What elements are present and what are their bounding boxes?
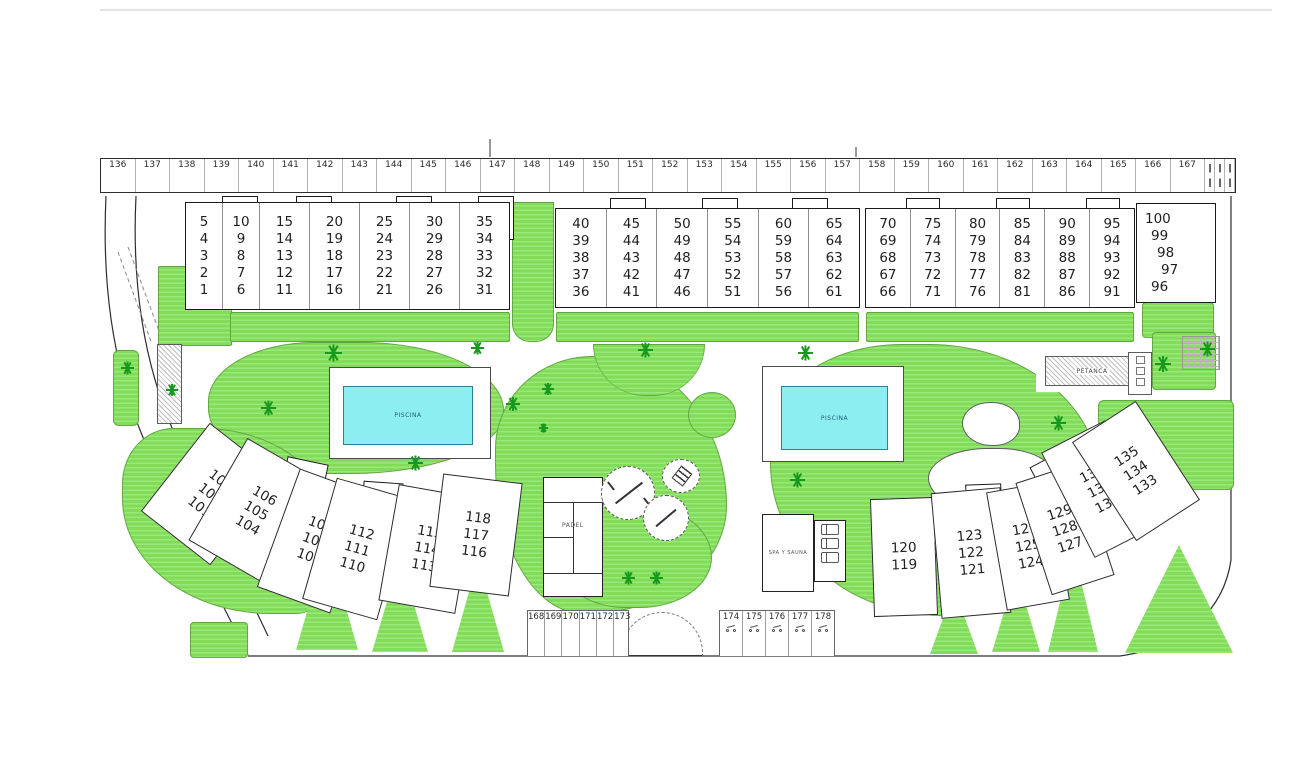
parking-space: 140 (239, 159, 274, 192)
parking-space: 169 (545, 611, 562, 656)
unit-number[interactable]: 10 (232, 214, 249, 231)
building-units-36-65: 4039383736454443424150494847465554535251… (555, 208, 860, 308)
unit-number[interactable]: 43 (623, 250, 640, 267)
parking-space: 136 (101, 159, 136, 192)
parking-space: 171 (580, 611, 597, 656)
unit-number[interactable]: 23 (376, 248, 393, 265)
unit-number[interactable]: 70 (879, 216, 896, 233)
unit-number[interactable]: 45 (623, 216, 640, 233)
lawn-area (688, 392, 736, 438)
lounger-icon (821, 538, 839, 549)
unit-number[interactable]: 95 (1103, 216, 1120, 233)
unit-column[interactable]: 7069686766 (866, 209, 910, 307)
parking-space-moto: 174 (720, 611, 743, 656)
parking-row-bottom-left: 168169170171172173 (527, 610, 629, 656)
unit-column[interactable]: 9089888786 (1044, 209, 1089, 307)
parking-space: 151 (619, 159, 654, 192)
motorcycle-icon (818, 626, 828, 632)
unit-number[interactable]: 47 (674, 267, 691, 284)
parking-space-moto: 178 (812, 611, 834, 656)
unit-column[interactable]: 1514131211 (259, 203, 309, 309)
petanca-court[interactable]: PETANCA (1045, 356, 1139, 386)
unit-number[interactable]: 42 (623, 267, 640, 284)
parking-space-moto: 177 (789, 611, 812, 656)
lower-unit-block[interactable]: 120119 (870, 497, 938, 617)
unit-number[interactable]: 38 (572, 250, 589, 267)
unit-number[interactable]: 80 (969, 216, 986, 233)
unit-column[interactable]: 6564636261 (808, 209, 859, 307)
tree-icon (471, 347, 484, 349)
lounger-icon (821, 524, 839, 535)
parking-number: 174 (723, 612, 739, 622)
lawn-area (556, 312, 859, 342)
unit-number[interactable]: 64 (826, 233, 843, 250)
building-units-66-95: 7069686766757473727180797877768584838281… (865, 208, 1135, 308)
unit-number[interactable]: 4 (200, 231, 209, 248)
unit-number[interactable]: 59 (775, 233, 792, 250)
slide-ladder-icon (672, 465, 693, 486)
lawn-area (230, 312, 510, 342)
parking-space: 173 (614, 611, 630, 656)
unit-number[interactable]: 44 (623, 233, 640, 250)
building-units-96-100[interactable]: 10099989796 (1136, 203, 1216, 303)
unit-number[interactable]: 35 (476, 214, 493, 231)
unit-number[interactable]: 24 (376, 231, 393, 248)
parking-space: 144 (377, 159, 412, 192)
unit-number[interactable]: 83 (1014, 250, 1031, 267)
parking-space: 161 (964, 159, 999, 192)
playground-circle-2 (643, 495, 689, 541)
unit-number[interactable]: 66 (879, 284, 896, 301)
unit-column[interactable]: 9594939291 (1089, 209, 1134, 307)
parking-number: 178 (815, 612, 831, 622)
unit-number[interactable]: 58 (775, 250, 792, 267)
unit-column[interactable]: 7574737271 (910, 209, 955, 307)
unit-number[interactable]: 32 (476, 265, 493, 282)
parking-number: 177 (792, 612, 808, 622)
parking-space: 163 (1033, 159, 1068, 192)
unit-number[interactable]: 30 (426, 214, 443, 231)
unit-number[interactable]: 13 (276, 248, 293, 265)
motorcycle-icon (749, 626, 759, 632)
unit-number[interactable]: 63 (826, 250, 843, 267)
unit-number[interactable]: 18 (326, 248, 343, 265)
unit-number[interactable]: 1 (200, 282, 209, 299)
pool-right[interactable]: PISCINA (781, 386, 888, 450)
unit-number[interactable]: 87 (1059, 267, 1076, 284)
unit-number[interactable]: 88 (1059, 250, 1076, 267)
unit-number[interactable]: 53 (724, 250, 741, 267)
unit-number[interactable]: 5 (200, 214, 209, 231)
parking-space: 160 (929, 159, 964, 192)
unit-column[interactable]: 2019181716 (309, 203, 359, 309)
unit-number[interactable]: 69 (879, 233, 896, 250)
unit-number[interactable]: 89 (1059, 233, 1076, 250)
unit-number[interactable]: 29 (426, 231, 443, 248)
pool-left-label: PISCINA (394, 412, 421, 419)
unit-number[interactable]: 100 (1139, 211, 1171, 228)
unit-number[interactable]: 78 (969, 250, 986, 267)
unit-column[interactable]: 6059585756 (758, 209, 809, 307)
unit-number[interactable]: 90 (1059, 216, 1076, 233)
building-units-1-35: 5432110987615141312112019181716252423222… (185, 202, 510, 310)
bike-rack-icon (1205, 159, 1215, 192)
parking-space: 149 (550, 159, 585, 192)
lawn-area (866, 312, 1134, 342)
parking-space: 158 (860, 159, 895, 192)
bike-rack-icon (1215, 159, 1225, 192)
site-plan-canvas: PETANCA PISCINA PISCINA PADEL SPA Y SAUN… (0, 0, 1315, 778)
lower-unit-block[interactable]: 118117116 (429, 474, 522, 597)
unit-column[interactable]: 5554535251 (707, 209, 758, 307)
unit-number[interactable]: 31 (476, 282, 493, 299)
parking-space: 143 (343, 159, 378, 192)
motorcycle-icon (795, 626, 805, 632)
unit-column[interactable]: 8079787776 (955, 209, 1000, 307)
parking-number: 176 (769, 612, 785, 622)
unit-number[interactable]: 79 (969, 233, 986, 250)
unit-number[interactable]: 41 (623, 284, 640, 301)
parking-space: 141 (274, 159, 309, 192)
unit-number[interactable]: 15 (276, 214, 293, 231)
unit-number[interactable]: 33 (476, 248, 493, 265)
tree-icon (798, 352, 813, 354)
lawn-wedge (1125, 545, 1233, 653)
unit-number[interactable]: 55 (724, 216, 741, 233)
parking-row-top: 1361371381391401411421431441451461471481… (100, 158, 1236, 193)
parking-space: 152 (653, 159, 688, 192)
unit-column[interactable]: 5049484746 (656, 209, 707, 307)
unit-number[interactable]: 121 (959, 560, 986, 579)
parking-row-bottom-right: 174175176177178 (719, 610, 835, 656)
unit-number[interactable]: 76 (969, 284, 986, 301)
parking-space: 164 (1067, 159, 1102, 192)
unit-number[interactable]: 40 (572, 216, 589, 233)
unit-column[interactable]: 54321 (186, 203, 222, 309)
unit-number[interactable]: 73 (924, 250, 941, 267)
unit-number[interactable]: 94 (1103, 233, 1120, 250)
unit-number[interactable]: 96 (1145, 279, 1168, 296)
unit-number[interactable]: 6 (237, 282, 246, 299)
unit-column[interactable]: 8584838281 (999, 209, 1044, 307)
parking-space: 147 (481, 159, 516, 192)
unit-column[interactable]: 3534333231 (459, 203, 509, 309)
lawn-area (190, 622, 248, 658)
unit-number[interactable]: 25 (376, 214, 393, 231)
unit-number[interactable]: 17 (326, 265, 343, 282)
unit-number[interactable]: 93 (1103, 250, 1120, 267)
unit-number[interactable]: 119 (891, 557, 917, 575)
unit-number[interactable]: 68 (879, 250, 896, 267)
parking-space: 139 (205, 159, 240, 192)
unit-number[interactable]: 92 (1103, 267, 1120, 284)
unit-column[interactable]: 2524232221 (359, 203, 409, 309)
unit-number[interactable]: 67 (879, 267, 896, 284)
unit-number[interactable]: 81 (1014, 284, 1031, 301)
unit-number[interactable]: 19 (326, 231, 343, 248)
parking-space: 162 (998, 159, 1033, 192)
unit-number[interactable]: 75 (924, 216, 941, 233)
spa-building[interactable]: SPA Y SAUNA (762, 514, 814, 592)
unit-number[interactable]: 3 (200, 248, 209, 265)
unit-number[interactable]: 26 (426, 282, 443, 299)
petanca-label: PETANCA (1075, 368, 1110, 375)
unit-column[interactable]: 3029282726 (409, 203, 459, 309)
unit-number[interactable]: 39 (572, 233, 589, 250)
parking-space: 168 (528, 611, 545, 656)
unit-number[interactable]: 99 (1145, 228, 1168, 245)
pool-left[interactable]: PISCINA (343, 386, 473, 445)
unit-number[interactable]: 50 (674, 216, 691, 233)
parking-number: 175 (746, 612, 762, 622)
unit-number[interactable]: 48 (674, 250, 691, 267)
unit-number[interactable]: 120 (891, 540, 917, 558)
lawn-area (512, 202, 554, 342)
unit-number[interactable]: 91 (1103, 284, 1120, 301)
unit-number[interactable]: 97 (1155, 262, 1178, 279)
lawn-area (113, 350, 139, 426)
unit-number[interactable]: 71 (924, 284, 941, 301)
spa-annex (814, 520, 846, 582)
unit-column[interactable]: 4039383736 (556, 209, 606, 307)
bins-area (1128, 352, 1152, 395)
unit-column[interactable]: 4544434241 (606, 209, 657, 307)
parking-space: 146 (446, 159, 481, 192)
unit-number[interactable]: 54 (724, 233, 741, 250)
unit-number[interactable]: 8 (237, 248, 246, 265)
unit-number[interactable]: 65 (826, 216, 843, 233)
unit-number[interactable]: 20 (326, 214, 343, 231)
padel-label: PADEL (562, 522, 584, 529)
unit-number[interactable]: 14 (276, 231, 293, 248)
parking-space: 157 (826, 159, 861, 192)
pool-right-label: PISCINA (821, 415, 848, 422)
unit-number[interactable]: 86 (1059, 284, 1076, 301)
unit-number[interactable]: 85 (1014, 216, 1031, 233)
unit-column[interactable]: 109876 (222, 203, 259, 309)
parking-space: 156 (791, 159, 826, 192)
unit-number[interactable]: 16 (326, 282, 343, 299)
motorcycle-icon (772, 626, 782, 632)
bike-rack-icon (1225, 159, 1235, 192)
parking-space: 154 (722, 159, 757, 192)
unit-number[interactable]: 56 (775, 284, 792, 301)
parking-space: 137 (136, 159, 171, 192)
unit-number[interactable]: 21 (376, 282, 393, 299)
unit-number[interactable]: 12 (276, 265, 293, 282)
unit-number[interactable]: 60 (775, 216, 792, 233)
unit-number[interactable]: 72 (924, 267, 941, 284)
playground-circle-3 (662, 459, 700, 493)
unit-number[interactable]: 82 (1014, 267, 1031, 284)
motorcycle-icon (726, 626, 736, 632)
unit-number[interactable]: 57 (775, 267, 792, 284)
parking-space: 138 (170, 159, 205, 192)
unit-number[interactable]: 7 (237, 265, 246, 282)
swing-icon (655, 509, 676, 527)
parking-space: 165 (1102, 159, 1137, 192)
unit-number[interactable]: 34 (476, 231, 493, 248)
unit-number[interactable]: 27 (426, 265, 443, 282)
parking-space: 170 (562, 611, 579, 656)
unit-number[interactable]: 9 (237, 231, 246, 248)
parking-space: 172 (597, 611, 614, 656)
parking-space: 159 (895, 159, 930, 192)
parking-space: 166 (1136, 159, 1171, 192)
unit-number[interactable]: 62 (826, 267, 843, 284)
sand-area-small (962, 402, 1020, 446)
unit-number[interactable]: 22 (376, 265, 393, 282)
parking-space: 153 (688, 159, 723, 192)
unit-number[interactable]: 116 (460, 542, 488, 562)
unit-number[interactable]: 51 (724, 284, 741, 301)
unit-number[interactable]: 84 (1014, 233, 1031, 250)
unit-number[interactable]: 37 (572, 267, 589, 284)
unit-number[interactable]: 98 (1151, 245, 1174, 262)
unit-number[interactable]: 11 (276, 282, 293, 299)
pergola-grid (1182, 336, 1220, 370)
unit-number[interactable]: 74 (924, 233, 941, 250)
unit-number[interactable]: 77 (969, 267, 986, 284)
unit-number[interactable]: 2 (200, 265, 209, 282)
fountain-dome (621, 612, 703, 656)
unit-number[interactable]: 28 (426, 248, 443, 265)
padel-court[interactable]: PADEL (543, 477, 603, 597)
unit-number[interactable]: 61 (826, 284, 843, 301)
lounger-icon (821, 552, 839, 563)
spa-label: SPA Y SAUNA (768, 550, 808, 556)
unit-number[interactable]: 49 (674, 233, 691, 250)
seesaw-icon (615, 482, 643, 505)
ramp-hatched-area (157, 344, 182, 424)
parking-space: 148 (515, 159, 550, 192)
parking-space: 167 (1171, 159, 1206, 192)
parking-space-moto: 175 (743, 611, 766, 656)
parking-space: 150 (584, 159, 619, 192)
unit-number[interactable]: 52 (724, 267, 741, 284)
parking-space: 142 (308, 159, 343, 192)
unit-number[interactable]: 46 (674, 284, 691, 301)
parking-space: 155 (757, 159, 792, 192)
parking-space: 145 (412, 159, 447, 192)
parking-space-moto: 176 (766, 611, 789, 656)
unit-number[interactable]: 36 (572, 284, 589, 301)
